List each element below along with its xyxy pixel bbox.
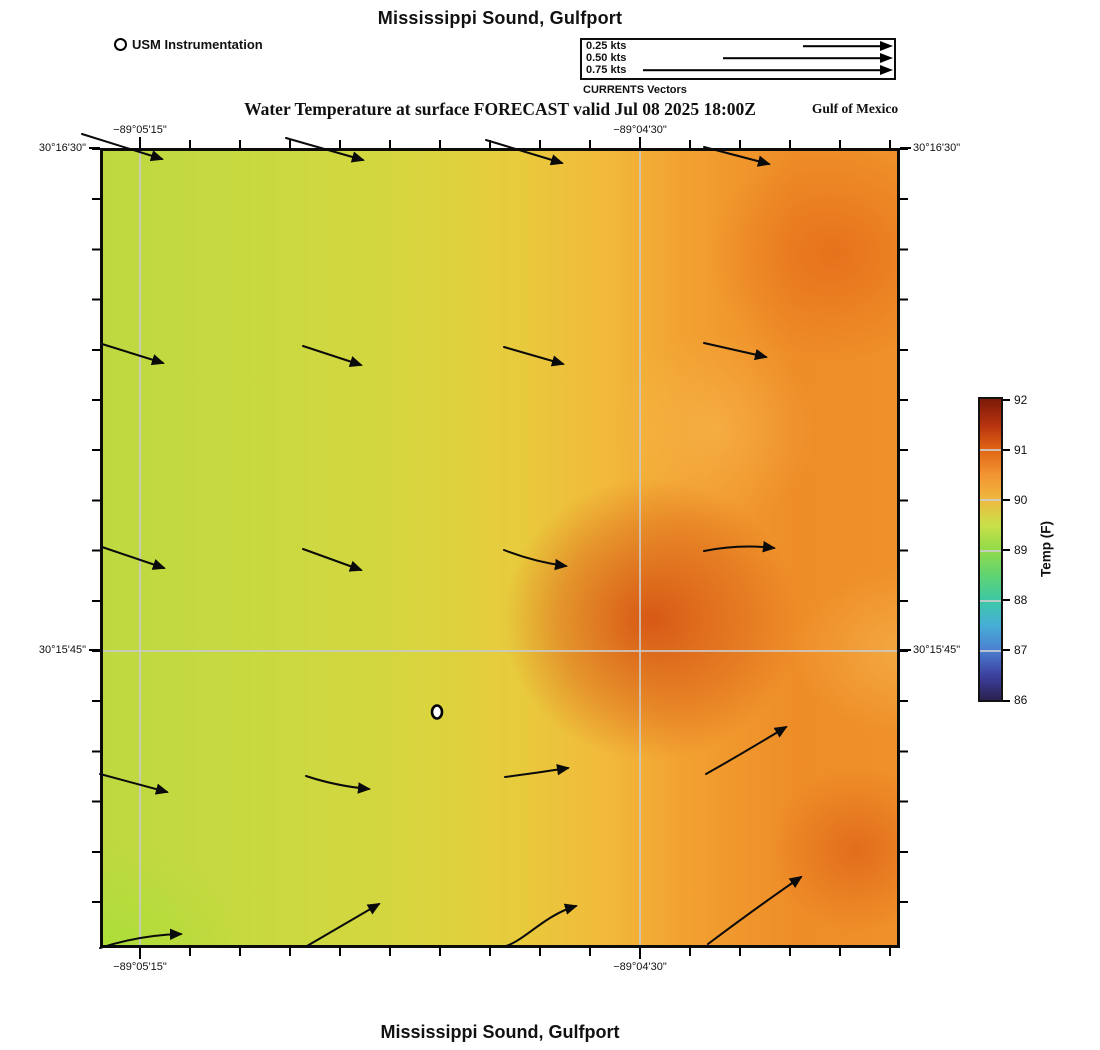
colorbar-tick: [1003, 549, 1010, 551]
region-label: Gulf of Mexico: [812, 101, 898, 117]
station-legend-label: USM Instrumentation: [132, 37, 263, 52]
y-tick-label-right: 30°15'45": [913, 644, 960, 656]
x-tick-label-bottom: −89°04'30": [613, 961, 667, 973]
currents-legend-caption: CURRENTS Vectors: [583, 84, 687, 96]
currents-legend-label: 0.25 kts: [586, 40, 626, 52]
colorbar-gridline: [980, 499, 1001, 501]
vector-arrow-line: [803, 45, 881, 47]
colorbar-tick: [1003, 449, 1010, 451]
y-major-tick: [900, 649, 911, 651]
x-major-tick: [639, 948, 641, 959]
y-major-tick: [89, 649, 100, 651]
colorbar-tick: [1003, 700, 1010, 702]
gridline-vertical: [639, 151, 641, 945]
x-axis-ticks-top: [100, 140, 900, 148]
currents-legend-row: 0.50 kts: [582, 52, 894, 64]
colorbar-tick-label: 89: [1014, 543, 1027, 557]
station-circle-icon: [114, 38, 127, 51]
arrowhead-icon: [880, 53, 893, 63]
vector-arrow-line: [643, 70, 881, 72]
vector-arrow-line: [723, 57, 881, 59]
gridline-vertical: [139, 151, 141, 945]
colorbar-gridline: [980, 449, 1001, 451]
colorbar-tick-label: 86: [1014, 693, 1027, 707]
y-tick-label-left: 30°15'45": [22, 644, 86, 656]
colorbar-gridline: [980, 550, 1001, 552]
colorbar-tick-label: 87: [1014, 643, 1027, 657]
arrowhead-icon: [880, 41, 893, 51]
currents-legend-label: 0.50 kts: [586, 52, 626, 64]
x-tick-label-bottom: −89°05'15": [113, 961, 167, 973]
y-axis-ticks-left: [92, 148, 100, 948]
y-axis-ticks-right: [900, 148, 908, 948]
colorbar-tick: [1003, 649, 1010, 651]
x-axis-ticks-bottom: [100, 948, 900, 956]
y-major-tick: [89, 147, 100, 149]
colorbar-tick: [1003, 499, 1010, 501]
currents-legend-row: 0.25 kts: [582, 40, 894, 52]
x-tick-label-top: −89°04'30": [613, 124, 667, 136]
currents-legend-label: 0.75 kts: [586, 64, 626, 76]
colorbar-tick-label: 91: [1014, 443, 1027, 457]
station-legend: USM Instrumentation: [114, 36, 263, 52]
colorbar: [978, 397, 1003, 702]
colorbar-tick-label: 88: [1014, 593, 1027, 607]
arrowhead-icon: [880, 65, 893, 75]
currents-legend-row: 0.75 kts: [582, 64, 894, 76]
y-tick-label-left: 30°16'30": [22, 142, 86, 154]
x-major-tick: [139, 948, 141, 959]
colorbar-tick-label: 92: [1014, 393, 1027, 407]
footer-title: Mississippi Sound, Gulfport: [100, 1022, 900, 1043]
y-tick-label-right: 30°16'30": [913, 142, 960, 154]
x-major-tick: [639, 137, 641, 148]
colorbar-gridline: [980, 650, 1001, 652]
gridline-horizontal: [103, 650, 897, 652]
colorbar-tick: [1003, 399, 1010, 401]
x-major-tick: [139, 137, 141, 148]
colorbar-tick: [1003, 599, 1010, 601]
colorbar-gridline: [980, 600, 1001, 602]
y-major-tick: [900, 147, 911, 149]
page-title: Mississippi Sound, Gulfport: [100, 8, 900, 29]
x-tick-label-top: −89°05'15": [113, 124, 167, 136]
forecast-plot-page: Mississippi Sound, Gulfport USM Instrume…: [0, 0, 1100, 1050]
colorbar-title: Temp (F): [1039, 521, 1054, 577]
currents-legend-box: 0.25 kts 0.50 kts 0.75 kts: [580, 38, 896, 80]
forecast-subtitle: Water Temperature at surface FORECAST va…: [100, 99, 900, 120]
colorbar-tick-label: 90: [1014, 493, 1027, 507]
temperature-map: [100, 148, 900, 948]
